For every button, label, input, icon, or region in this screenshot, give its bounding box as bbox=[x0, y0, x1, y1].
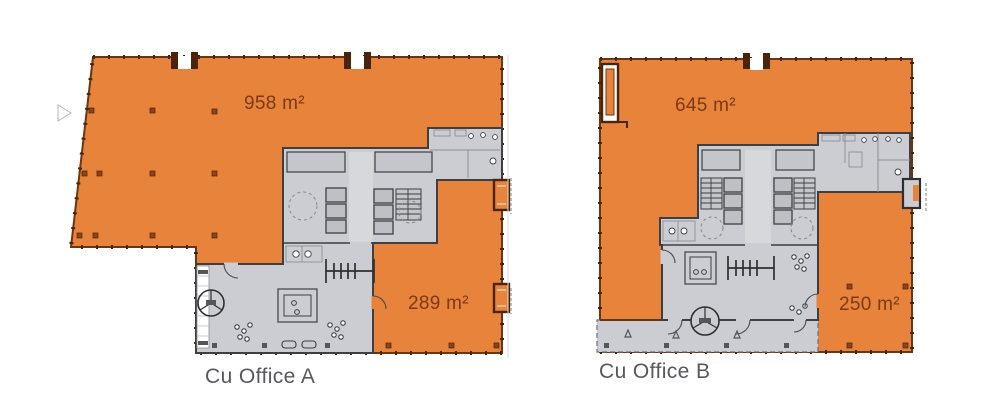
plan-a-area-small-label: 289 m² bbox=[408, 293, 469, 315]
plan-b-core-room-right bbox=[776, 150, 814, 170]
plan-b-balcony bbox=[903, 179, 926, 212]
plan-a-title: Cu Office A bbox=[205, 365, 315, 389]
plan-b-core-room-left bbox=[702, 150, 740, 170]
floorplan-canvas bbox=[0, 0, 1000, 412]
plan-a-west-marker-icon bbox=[58, 105, 71, 121]
plan-a-entrance-notch-2 bbox=[344, 52, 371, 69]
plan-a-balcony-1 bbox=[494, 180, 509, 210]
plan-b-area-large-label: 645 m² bbox=[675, 95, 736, 117]
floorplan-figure: 958 m² 289 m² 645 m² 250 m² Cu Office A … bbox=[0, 0, 1000, 412]
plan-b-entrance-notch bbox=[743, 53, 770, 70]
plan-b-core-corridor bbox=[745, 150, 771, 243]
plan-a-core-room-right bbox=[375, 152, 432, 172]
plan-a-balcony-2 bbox=[494, 284, 509, 312]
plan-a-area-large-label: 958 m² bbox=[244, 93, 305, 115]
plan-a-core-corridor bbox=[349, 152, 373, 242]
plan-b-title: Cu Office B bbox=[599, 360, 710, 384]
plan-a-entrance-notch-1 bbox=[171, 52, 198, 69]
plan-a-core-room-left bbox=[287, 152, 345, 172]
plan-b-area-small-label: 250 m² bbox=[839, 294, 900, 316]
